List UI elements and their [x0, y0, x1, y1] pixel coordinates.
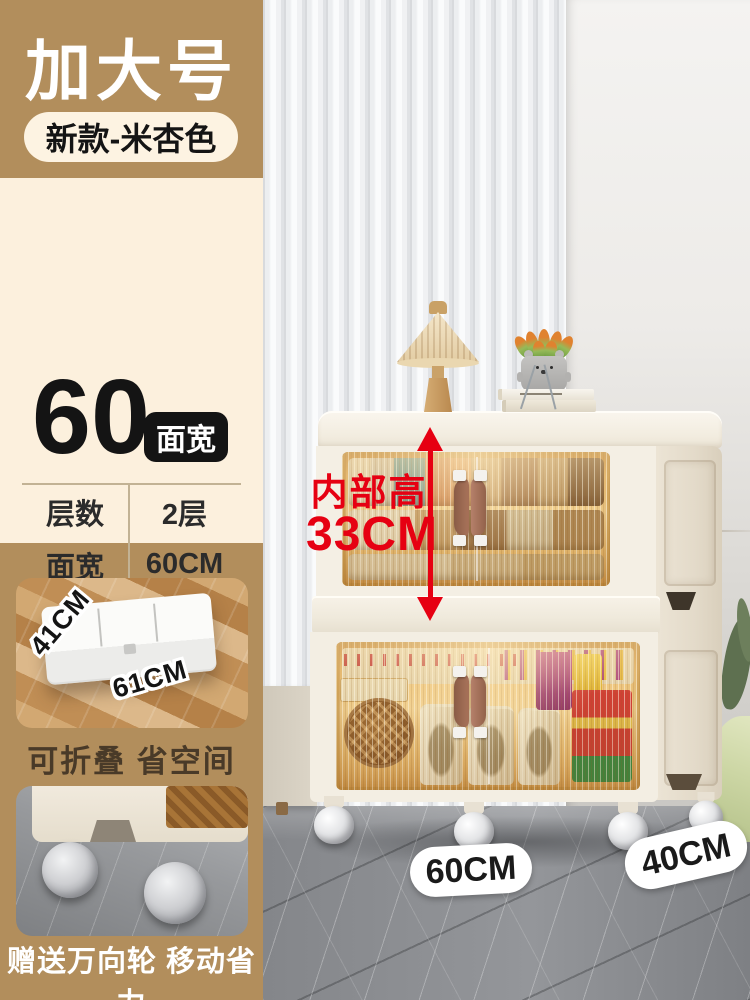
handle-clip [474, 666, 487, 677]
inner-height-value: 33CM [306, 511, 432, 559]
floor-width-pill: 60CM [409, 842, 533, 898]
snack-box [340, 678, 408, 702]
snack-pack-edges [504, 650, 632, 680]
baseboard-foot [276, 802, 288, 815]
snack-bag [536, 652, 572, 710]
cabinet-middle-band [312, 596, 660, 634]
handle-strap [454, 479, 469, 536]
bear-eye [536, 366, 539, 369]
side-recess-lower [664, 650, 718, 786]
inner-height-annotation: 内部高 33CM [306, 474, 432, 559]
snack-bag [574, 654, 602, 706]
caster-wheel [42, 842, 98, 898]
handle-clip [453, 666, 466, 677]
bread-basket [166, 786, 248, 828]
handle-clip [474, 470, 487, 481]
measure-arrow-down-icon [417, 597, 443, 621]
lid-seam [97, 608, 102, 646]
product-marketing-image: 内部高 33CM 60CM 40CM 加大号 新款-米杏色 60 面宽 层数 2… [0, 0, 750, 1000]
lower-box-window [336, 642, 640, 790]
door-divider [488, 648, 490, 784]
caster-wheel [312, 796, 356, 850]
fold-caption: 可折叠 省空间 [0, 736, 263, 781]
baseboard-panel [263, 686, 317, 806]
handle-clip [474, 535, 487, 546]
handle-clip [453, 727, 466, 738]
folded-state-photo: 41CM 61CM [16, 578, 248, 728]
wheel-body [314, 806, 354, 844]
snack-pack-edges [344, 654, 524, 666]
lid-seam [153, 604, 158, 642]
width-unit-badge: 面宽 [144, 412, 228, 462]
waffle-cookie-tin [344, 698, 414, 768]
variant-badge: 新款-米杏色 [24, 112, 238, 162]
size-title: 加大号 [0, 18, 263, 114]
handle-clip [453, 470, 466, 481]
handle-strap [471, 675, 486, 727]
spec-value: 60CM [128, 548, 241, 581]
handle-strap [471, 479, 486, 536]
spec-label: 层数 [22, 491, 128, 533]
inner-height-label: 内部高 [306, 474, 432, 511]
snack-box [572, 690, 632, 782]
bear-eye [550, 366, 553, 369]
drawer-notch [90, 820, 136, 842]
spec-value: 2层 [128, 491, 241, 533]
wheel-caption: 赠送万向轮 移动省力 [0, 938, 263, 1000]
caster-wheel [144, 862, 206, 924]
lamp-neck [432, 366, 444, 380]
upper-door-handle [452, 470, 488, 546]
snack-can [518, 708, 560, 785]
stacked-book [502, 400, 596, 412]
wheels-photo [16, 786, 248, 936]
table-row: 层数 2层 [22, 485, 241, 538]
cabinet-top-lid [318, 411, 722, 448]
measure-arrow-up-icon [417, 427, 443, 451]
bear-arm [565, 372, 571, 382]
side-recess-upper [664, 460, 716, 586]
info-sidebar: 加大号 新款-米杏色 60 面宽 层数 2层 面宽 60CM 侧深 40CM [0, 0, 263, 1000]
bear-arm [517, 372, 523, 382]
lower-door-handle [452, 666, 488, 738]
width-number: 60 [32, 364, 150, 470]
handle-clip [453, 535, 466, 546]
spec-panel: 60 面宽 层数 2层 面宽 60CM 侧深 40CM 高度 75CM [0, 178, 263, 543]
lid-latch [123, 643, 136, 654]
handle-strap [454, 675, 469, 727]
handle-clip [474, 727, 487, 738]
